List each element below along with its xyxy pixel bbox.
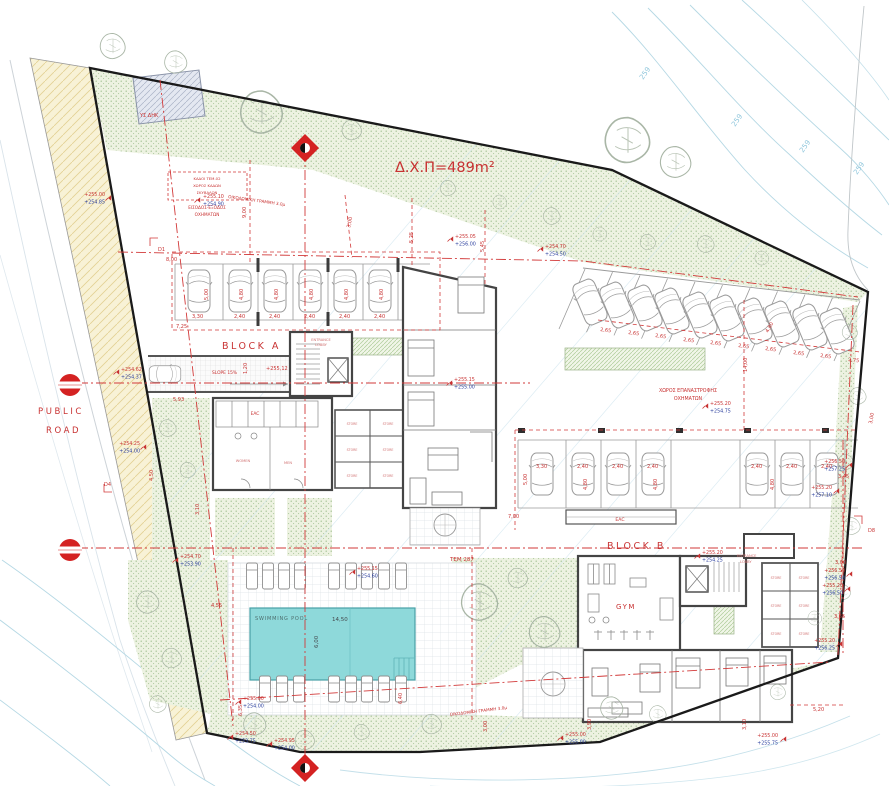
elev-red: +255.15 bbox=[454, 377, 475, 383]
dim: 2,40 bbox=[269, 314, 280, 320]
dim: 3,65 bbox=[834, 614, 845, 620]
elev-red: +254.70 bbox=[545, 244, 566, 250]
elev-red: +255.15 bbox=[357, 566, 378, 572]
elev-red: +255.00 bbox=[565, 732, 586, 738]
dim: 3,10 bbox=[195, 504, 201, 515]
elev-red: +255.20 bbox=[811, 485, 832, 491]
dim: 1,20 bbox=[243, 363, 249, 374]
elev-blue: +254.00 bbox=[243, 704, 264, 710]
elev-blue: +254.85 bbox=[84, 200, 105, 206]
elev-red: +254.50 bbox=[235, 731, 256, 737]
dim: 4,55 bbox=[211, 603, 222, 609]
contour-label: 259 bbox=[852, 161, 866, 177]
elev-blue: +254.00 bbox=[274, 746, 295, 752]
dim: 5,00 bbox=[523, 474, 529, 485]
car-icon bbox=[149, 364, 181, 384]
pool-length: 14,50 bbox=[332, 617, 348, 623]
basement-ramp: SLOPE 15% bbox=[148, 356, 302, 392]
dim: 2,40 bbox=[751, 464, 762, 470]
turning-area-label: ΧΩΡΟΣ ΕΠΑΝΑΣΤΡΟΦΗΣ bbox=[659, 388, 717, 394]
dim: 5,93 bbox=[173, 397, 184, 403]
dim: 6,40 bbox=[398, 693, 404, 704]
dim: 4,80 bbox=[583, 479, 589, 490]
dim: 14,00 bbox=[743, 358, 749, 372]
contour-label: 259 bbox=[638, 66, 652, 82]
section-marker-left-lower bbox=[58, 539, 82, 561]
car-icon bbox=[744, 453, 770, 495]
public-road-label: PUBLIC bbox=[38, 407, 84, 417]
store-label: STORE bbox=[347, 474, 358, 478]
elev-blue: +254.37 bbox=[121, 375, 142, 381]
dim: 3,30 bbox=[536, 464, 547, 470]
dim: 3,10 bbox=[742, 719, 748, 730]
dim: 3,90 bbox=[587, 719, 593, 730]
women-label: WOMEN bbox=[236, 459, 251, 463]
elev-blue: +254.90 bbox=[203, 202, 224, 208]
block-a-title: BLOCK A bbox=[222, 341, 281, 352]
elev-red: +254.95 bbox=[274, 738, 295, 744]
store-label: STORE bbox=[771, 604, 782, 608]
plot-area-label: Δ.Χ.Π=489m² bbox=[395, 160, 495, 176]
elev-blue: +254.75 bbox=[710, 409, 731, 415]
elev-blue: +253.75 bbox=[235, 739, 256, 745]
block-b-entrance-label: ENTRANCE bbox=[737, 554, 757, 558]
section-marker-bottom bbox=[291, 754, 319, 782]
store-label: STORE bbox=[799, 632, 810, 636]
elev-red: +255.00 bbox=[243, 696, 264, 702]
block-b-title: BLOCK B bbox=[607, 541, 666, 552]
contour-label: 259 bbox=[730, 113, 744, 129]
block-b-gym: GYM bbox=[578, 556, 680, 652]
dim: 3,00 bbox=[835, 560, 846, 566]
dim: 4,80 bbox=[309, 289, 315, 300]
pool-width: 6,00 bbox=[314, 635, 320, 648]
block-b-entrance-label: LOBBY bbox=[740, 560, 752, 564]
dim: 4,80 bbox=[274, 289, 280, 300]
block-a-entrance-label: LOBBY bbox=[315, 343, 327, 347]
dim: 2,40 bbox=[234, 314, 245, 320]
block-a-entrance-core: ENTRANCE LOBBY bbox=[290, 332, 352, 396]
dim: 7,00 bbox=[508, 514, 519, 520]
elev-blue: +256.25 bbox=[814, 646, 835, 652]
store-label: STORE bbox=[771, 576, 782, 580]
dim: 5,45 bbox=[480, 241, 486, 252]
block-a-entrance-label: ENTRANCE bbox=[311, 338, 331, 342]
car-icon bbox=[605, 453, 631, 495]
block-b-storage: STORE STORE STORE STORE STORE STORE bbox=[762, 563, 818, 647]
elev-blue: +254.25 bbox=[702, 558, 723, 564]
car-icon bbox=[779, 453, 805, 495]
store-label: STORE bbox=[799, 576, 810, 580]
water-tank-label: ΥΣ ΔΗΚ bbox=[139, 113, 159, 119]
store-label: STORE bbox=[383, 448, 394, 452]
dim: 4,80 bbox=[770, 479, 776, 490]
elev-blue: +255.00 bbox=[454, 385, 475, 391]
ramp-elevation: +255,12 bbox=[266, 366, 288, 372]
dim: 3,00 bbox=[483, 721, 489, 732]
parcel-number: ΤΕΜ 287 bbox=[449, 557, 474, 563]
dim: 3,00 bbox=[868, 412, 876, 424]
dim: 4,80 bbox=[344, 289, 350, 300]
elev-red: +255.20 bbox=[822, 583, 843, 589]
section-label-d4: D4 bbox=[104, 482, 111, 488]
elev-red: +256.50 bbox=[824, 568, 845, 574]
dim: 2,40 bbox=[786, 464, 797, 470]
store-label: STORE bbox=[799, 604, 810, 608]
elev-blue: +256.00 bbox=[455, 242, 476, 248]
elev-red: +256.50 bbox=[824, 459, 845, 465]
dim: 8,00 bbox=[166, 257, 177, 263]
pool-label: SWIMMING POOL bbox=[255, 616, 308, 622]
dim: 2,40 bbox=[647, 464, 658, 470]
elev-red: +254.70 bbox=[180, 554, 201, 560]
store-label: STORE bbox=[347, 448, 358, 452]
elev-red: +255.20 bbox=[814, 638, 835, 644]
dim: 2,40 bbox=[577, 464, 588, 470]
block-a-changing-wing: EAC WOMEN MEN bbox=[213, 398, 332, 490]
dim: 7,25 bbox=[176, 324, 187, 330]
dim: 2,40 bbox=[304, 314, 315, 320]
elev-red: +255.00 bbox=[757, 733, 778, 739]
elev-blue: +254.00 bbox=[119, 449, 140, 455]
elev-red: +254.25 bbox=[119, 441, 140, 447]
elev-red: +255.20 bbox=[702, 550, 723, 556]
section-label-d1: D1 bbox=[158, 247, 165, 253]
elev-blue: +256.50 bbox=[822, 591, 843, 597]
dim: 9,00 bbox=[242, 207, 248, 218]
store-label: STORE bbox=[347, 422, 358, 426]
gym-label: GYM bbox=[616, 603, 636, 611]
dim: 2,40 bbox=[612, 464, 623, 470]
elev-blue: +253.90 bbox=[180, 562, 201, 568]
elev-blue: +254.50 bbox=[545, 252, 566, 258]
dim: 4,80 bbox=[239, 289, 245, 300]
public-road-label: ROAD bbox=[46, 426, 81, 436]
ramp-slope-label: SLOPE 15% bbox=[212, 370, 237, 376]
dim: 4,50 bbox=[149, 470, 155, 481]
section-marker-left-upper bbox=[58, 374, 82, 396]
vehicle-entry-label: ΟΧΗΜΑΤΩΝ bbox=[195, 212, 220, 217]
dim: 4,80 bbox=[653, 479, 659, 490]
store-label: STORE bbox=[383, 422, 394, 426]
contour-label: 259 bbox=[798, 139, 812, 155]
dim: 3,45 bbox=[838, 474, 849, 480]
block-b-core bbox=[680, 556, 746, 606]
elev-blue: +255.75 bbox=[757, 741, 778, 747]
elev-red: +255.20 bbox=[710, 401, 731, 407]
car-icon bbox=[529, 453, 555, 495]
section-label-d8: D8 bbox=[868, 528, 875, 534]
elev-red: +255.00 bbox=[84, 192, 105, 198]
dim: 5,25 bbox=[409, 232, 415, 243]
dim: 2,40 bbox=[374, 314, 385, 320]
elev-blue: +254.60 bbox=[357, 574, 378, 580]
store-label: STORE bbox=[771, 632, 782, 636]
elev-red: +255.05 bbox=[455, 234, 476, 240]
elev-red: +254.62 bbox=[121, 367, 142, 373]
turning-area-label: ΟΧΗΜΑΤΩΝ bbox=[674, 396, 703, 402]
bins-note-line: ΧΩΡΟΣ ΚΑΔΩΝ bbox=[193, 183, 221, 188]
site-plan-drawing: 259 259 259 259 ΥΣ ΔΗΚ SWIMMING POOL 14,… bbox=[0, 0, 889, 786]
elev-red: +255.10 bbox=[203, 194, 224, 200]
bins-note-line: ΚΑΔΟΙ ΤΕΜ.02 bbox=[193, 176, 221, 181]
eac-label-a: EAC bbox=[251, 411, 260, 417]
eac-label-b: EAC bbox=[615, 517, 624, 523]
elev-blue: +257.10 bbox=[811, 493, 832, 499]
dim: 4,80 bbox=[379, 289, 385, 300]
block-a-apartment bbox=[403, 267, 496, 545]
dim: 5,00 bbox=[204, 289, 210, 300]
dim: 3,30 bbox=[192, 314, 203, 320]
dim: 5,20 bbox=[813, 707, 824, 713]
store-label: STORE bbox=[383, 474, 394, 478]
elev-blue: +255.00 bbox=[565, 740, 586, 746]
block-b-patio bbox=[523, 648, 583, 718]
elev-blue: +257.25 bbox=[824, 467, 845, 473]
dim: 2,40 bbox=[339, 314, 350, 320]
eac-cabinet: EAC bbox=[566, 510, 676, 524]
block-a-storage: STORE STORE STORE STORE STORE STORE bbox=[335, 410, 405, 488]
men-label: MEN bbox=[284, 461, 292, 465]
elev-blue: +256.50 bbox=[824, 576, 845, 582]
site-plan-canvas: 259 259 259 259 ΥΣ ΔΗΚ SWIMMING POOL 14,… bbox=[0, 0, 889, 786]
